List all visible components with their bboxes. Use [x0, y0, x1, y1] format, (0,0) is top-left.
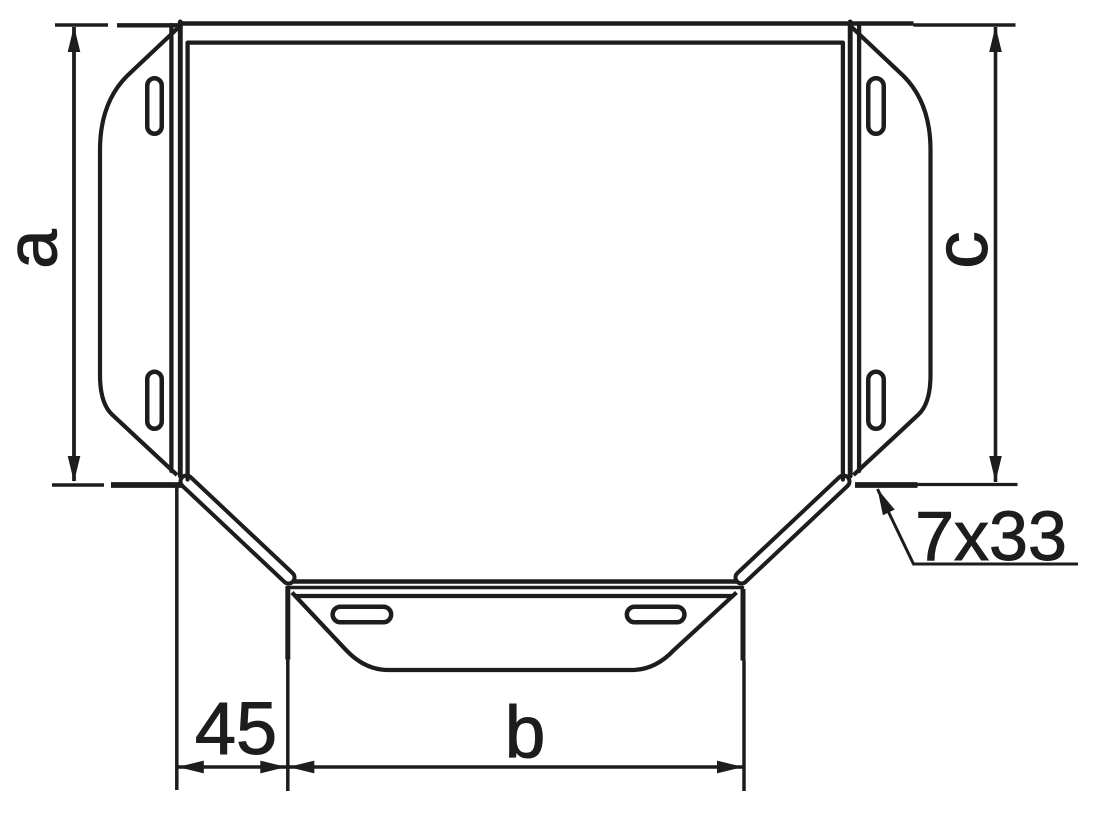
svg-text:b: b — [505, 692, 546, 773]
svg-text:7x33: 7x33 — [915, 497, 1067, 575]
svg-text:a: a — [0, 229, 73, 269]
svg-text:c: c — [919, 231, 1003, 269]
svg-text:45: 45 — [195, 687, 277, 770]
